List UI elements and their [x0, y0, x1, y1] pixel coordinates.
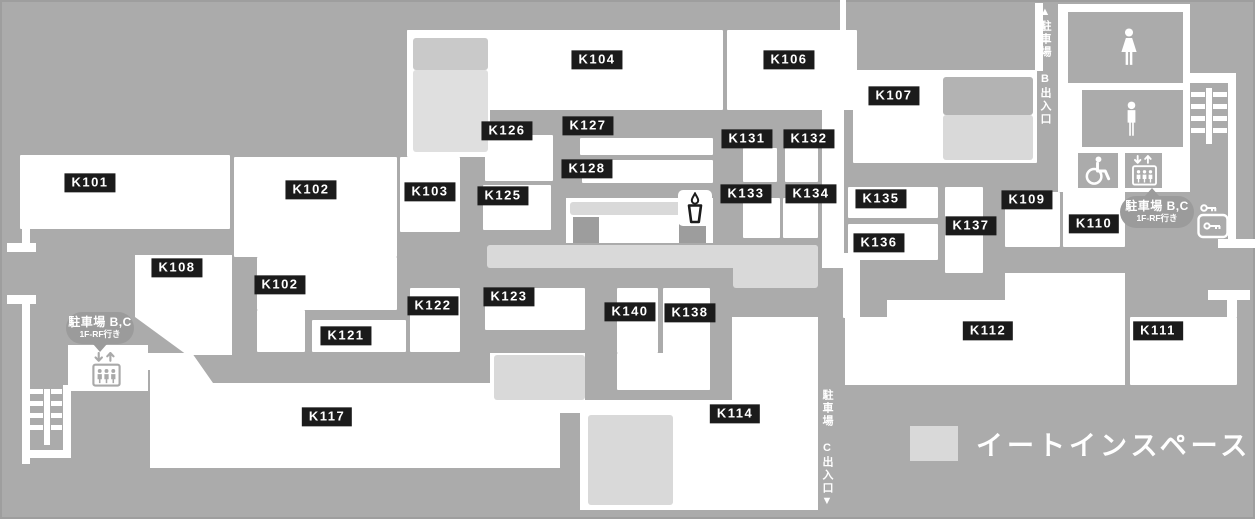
unit-label-K107: K107 [868, 86, 919, 105]
unit-label-K106: K106 [763, 50, 814, 69]
unit-label-K108: K108 [151, 258, 202, 277]
legend: イートインスペース [910, 424, 1251, 463]
unit-label-K131: K131 [721, 129, 772, 148]
floor-map: K101K102K102K103K104K106K107K108K109K110… [0, 0, 1255, 519]
wall [28, 389, 43, 394]
wall [1191, 104, 1205, 109]
wall [51, 413, 62, 418]
unit-label-K140: K140 [604, 302, 655, 321]
eat-in-area [733, 245, 818, 288]
unit-K102b [257, 310, 305, 352]
unit-label-K125: K125 [477, 186, 528, 205]
unit-label-K101: K101 [64, 173, 115, 192]
unit-label-K109: K109 [1001, 190, 1052, 209]
wall [1191, 128, 1205, 133]
legend-label: イートインスペース [976, 424, 1251, 463]
wall [1218, 239, 1255, 248]
wall [28, 450, 71, 458]
badge-pointer-up [1145, 188, 1159, 196]
wall [1213, 104, 1227, 109]
eat-in-area [588, 415, 673, 505]
unit-label-K137: K137 [945, 216, 996, 235]
eat-in-area [494, 355, 585, 400]
unit-label-K112: K112 [963, 321, 1013, 340]
parking-b-entrance-label: ▲駐車場 B出入口 [1039, 6, 1050, 126]
parking-bc-elevator-badge-right: 駐車場 B,C 1F-RF行き [1120, 196, 1194, 228]
unit-label-K132: K132 [783, 129, 834, 148]
badge-line2: 1F-RF行き [1120, 214, 1194, 224]
kiosk-block [573, 217, 599, 243]
unit-label-K117: K117 [302, 407, 352, 426]
wall [1213, 92, 1227, 97]
unit-K131 [743, 148, 777, 182]
unit-label-K114: K114 [710, 404, 760, 423]
parking-bc-elevator-badge-left: 駐車場 B,C 1F-RF行き [66, 312, 134, 344]
unit-K132 [785, 148, 818, 182]
wall [148, 353, 162, 370]
wall [840, 0, 846, 33]
wheelchair-icon [1082, 155, 1114, 186]
unit-label-K136: K136 [853, 233, 904, 252]
badge-line2: 1F-RF行き [66, 330, 134, 340]
unit-label-K138: K138 [664, 303, 715, 322]
eat-in-swatch [910, 426, 958, 461]
coin-locker-icon [1195, 202, 1231, 240]
wall [51, 389, 62, 394]
unit-label-K102: K102 [285, 180, 336, 199]
female-restroom-icon [1117, 28, 1141, 66]
unit-K102 [234, 157, 397, 257]
wall [1206, 88, 1212, 144]
unit-K136 [843, 253, 860, 318]
unit-K106 [727, 30, 857, 110]
unit-label-K103: K103 [404, 182, 455, 201]
unit-label-K134: K134 [785, 184, 836, 203]
drink-cup-icon [678, 190, 712, 226]
eat-in-area [943, 115, 1033, 160]
elevator-icon [90, 352, 123, 387]
unit-label-K126: K126 [481, 121, 532, 140]
unit-label-K122: K122 [407, 296, 458, 315]
wall [63, 385, 71, 458]
unit-K127 [580, 138, 713, 155]
wall [7, 243, 36, 252]
elevator-icon [1130, 155, 1159, 186]
wall [22, 228, 30, 244]
eat-in-area [943, 77, 1033, 115]
wall [44, 389, 50, 445]
badge-line1: 駐車場 B,C [66, 316, 134, 330]
badge-pointer-down [93, 344, 107, 352]
unit-K134 [783, 198, 818, 238]
wall [28, 425, 43, 430]
unit-label-K127: K127 [562, 116, 613, 135]
badge-line1: 駐車場 B,C [1120, 200, 1194, 214]
wall [1213, 116, 1227, 121]
unit-label-K102b: K102 [254, 275, 305, 294]
wall [28, 413, 43, 418]
wall [1213, 128, 1227, 133]
eat-in-area [413, 70, 488, 152]
unit-label-K135: K135 [855, 189, 906, 208]
wall [28, 401, 43, 406]
wall [51, 401, 62, 406]
wall [51, 425, 62, 430]
unit-label-K104: K104 [571, 50, 622, 69]
unit-label-K128: K128 [561, 159, 612, 178]
eat-in-area [413, 38, 488, 70]
unit-label-K110: K110 [1069, 214, 1119, 233]
unit-label-K133: K133 [720, 184, 771, 203]
wall [1208, 290, 1250, 300]
wall [1191, 116, 1205, 121]
unit-K133 [743, 198, 780, 238]
male-restroom-icon [1121, 100, 1142, 138]
unit-label-K111: K111 [1133, 321, 1183, 340]
unit-label-K123: K123 [483, 287, 534, 306]
unit-label-K121: K121 [320, 326, 371, 345]
unit-K126 [485, 135, 553, 181]
wall [22, 303, 30, 464]
wall [1227, 300, 1237, 317]
unit-K101 [20, 155, 230, 229]
parking-c-entrance-label: 駐車場 C出入口▼ [821, 389, 832, 509]
unit-K140 [617, 353, 710, 390]
wall [1191, 92, 1205, 97]
